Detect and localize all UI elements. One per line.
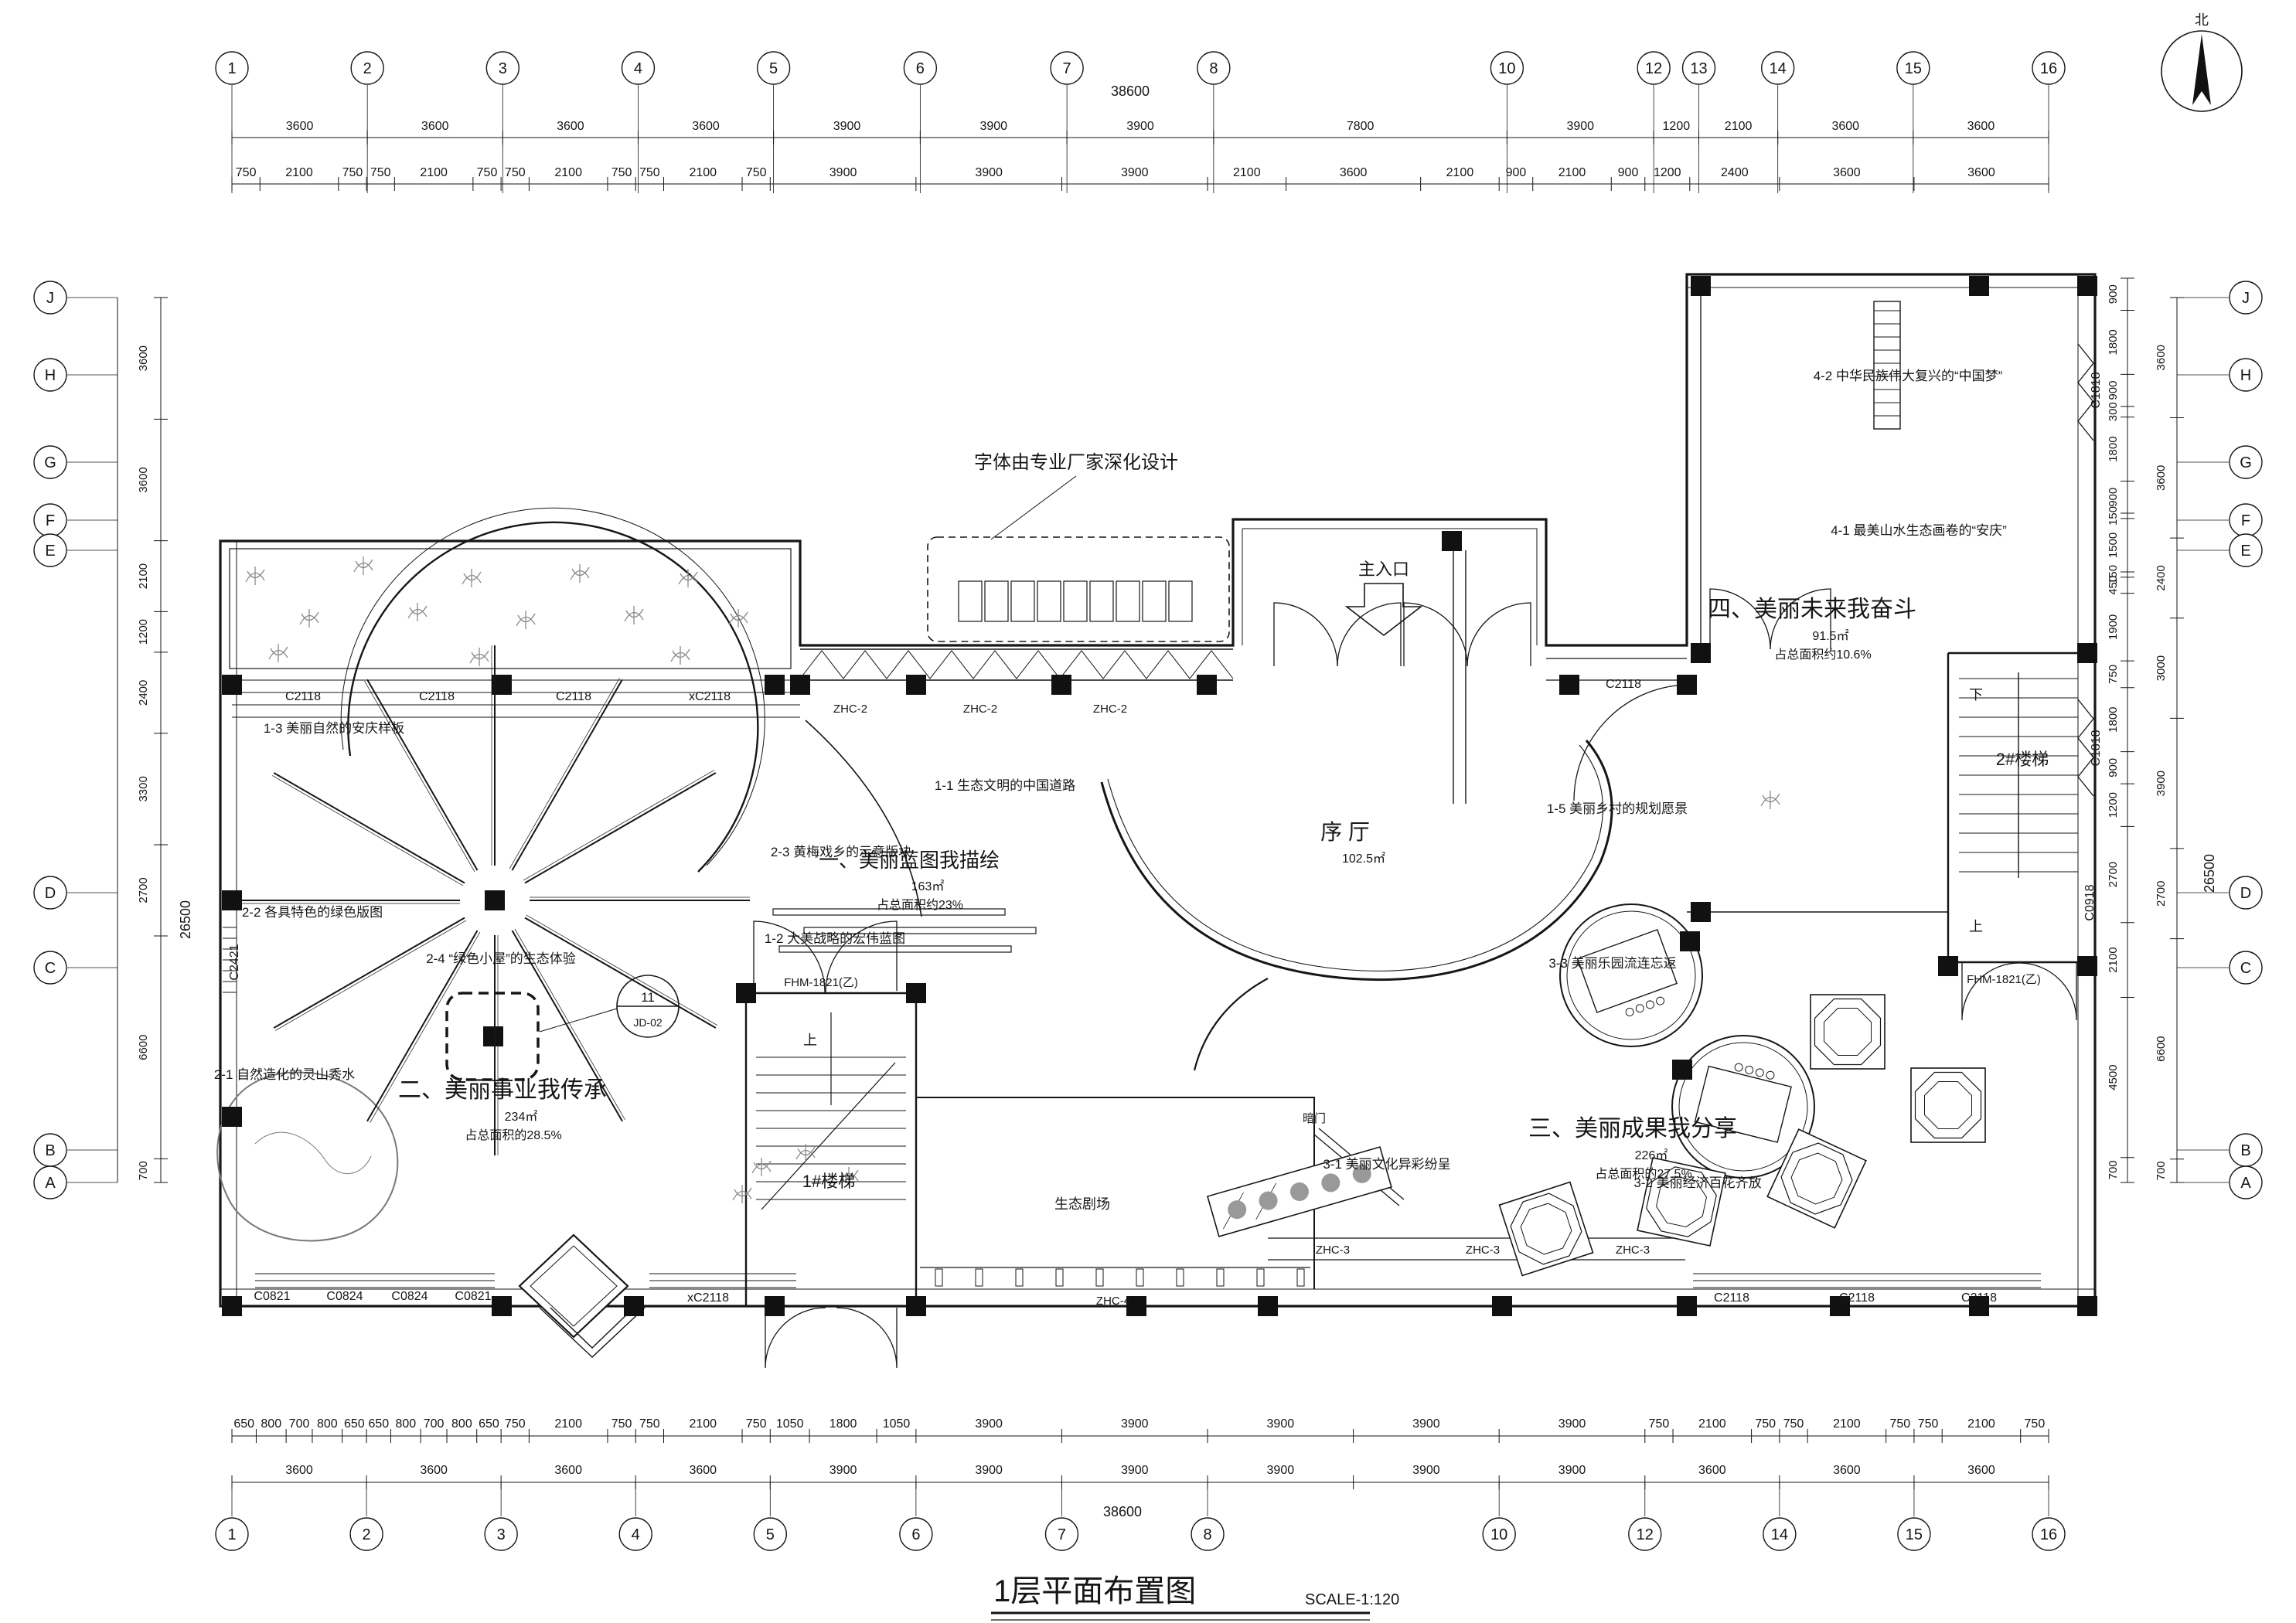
dim-label: 750 xyxy=(746,166,767,179)
door-leaf xyxy=(836,1308,897,1368)
dim-label: 2100 xyxy=(420,166,448,179)
grid-bubble-label: 2 xyxy=(363,60,372,77)
room-area: 102.5㎡ xyxy=(1342,852,1385,866)
grid-bubble-label: E xyxy=(2240,543,2250,560)
grid-bubble-label: E xyxy=(45,543,55,560)
booth-dot xyxy=(1645,1000,1655,1010)
dim-label: 3900 xyxy=(1566,120,1594,133)
dim-label: 750 xyxy=(236,166,257,179)
room-label: 生态剧场 xyxy=(1054,1196,1110,1212)
dim-label: 3900 xyxy=(1412,1464,1440,1477)
dim-label: 1050 xyxy=(883,1417,911,1431)
dim-label: 3600 xyxy=(1967,1464,1995,1477)
louver-tick xyxy=(1257,1269,1264,1286)
louver-label: ZHC-3 xyxy=(1616,1244,1650,1257)
dim-label: 750 xyxy=(1649,1417,1670,1431)
dim-label: 2100 xyxy=(137,563,150,589)
louver-tick xyxy=(1016,1269,1023,1286)
dim-label: 750 xyxy=(505,1417,526,1431)
dim-label: 3900 xyxy=(1558,1417,1586,1431)
column xyxy=(485,890,505,910)
grid-bubble-label: 5 xyxy=(769,60,778,77)
louver-label: ZHC-2 xyxy=(833,703,867,716)
dim-label: 2100 xyxy=(1967,1417,1995,1431)
dim-label: 750 xyxy=(505,166,526,179)
grid-bubble-label: 6 xyxy=(911,1526,920,1543)
signage-callout xyxy=(928,476,1229,641)
column xyxy=(222,890,242,910)
grid-bubble-label: 15 xyxy=(1906,1526,1923,1543)
grid-bubble-label: H xyxy=(45,367,56,384)
callout-leader xyxy=(991,476,1076,539)
grid-bubble-label: F xyxy=(2241,512,2250,529)
dim-label: 900 xyxy=(2107,758,2120,777)
dim-label: 1800 xyxy=(2107,436,2120,461)
grid-bubble-label: 10 xyxy=(1498,60,1515,77)
door-label: 暗门 xyxy=(1303,1112,1326,1125)
floor-plan-svg: 11 JD-02 字体由专业厂家深化设计 主入口 xyxy=(0,0,2296,1623)
window-label: xC2118 xyxy=(687,1291,729,1305)
booth-dot xyxy=(1745,1065,1754,1074)
column xyxy=(1442,531,1462,551)
window-label: C2118 xyxy=(1714,1291,1749,1305)
column xyxy=(1492,1296,1512,1316)
radial-spoke xyxy=(525,773,716,883)
grid-bubble-label: 14 xyxy=(1771,1526,1788,1543)
dim-label: 2100 xyxy=(554,1417,582,1431)
column xyxy=(1672,1060,1692,1080)
plant-icon xyxy=(679,569,697,587)
dim-label: 3600 xyxy=(1833,166,1861,179)
dim-label: 7800 xyxy=(1347,120,1375,133)
compass-label: 北 xyxy=(2195,12,2209,28)
dim-label: 3900 xyxy=(829,1464,857,1477)
window-label: C2118 xyxy=(556,690,591,703)
dim-label: 3900 xyxy=(1121,1417,1149,1431)
dim-label: 750 xyxy=(746,1417,767,1431)
dim-label: 6600 xyxy=(2155,1036,2168,1061)
plant-icon xyxy=(408,603,427,621)
door-arc-large xyxy=(1574,685,1690,801)
case-frame xyxy=(1811,995,1885,1069)
grid-bubble-label: D xyxy=(2240,885,2251,902)
dim-label: 3600 xyxy=(285,1464,313,1477)
grid-bubble-label: 6 xyxy=(916,60,925,77)
dim-label: 3600 xyxy=(1967,120,1995,133)
dim-label: 3900 xyxy=(1267,1464,1295,1477)
dim-label: 900 xyxy=(2107,488,2120,507)
column xyxy=(1677,1296,1697,1316)
grid-bubble-label: 16 xyxy=(2040,1526,2057,1543)
dim-label: 650 xyxy=(368,1417,389,1431)
signage-panel xyxy=(1116,581,1139,621)
column xyxy=(1258,1296,1278,1316)
plant-icon xyxy=(354,556,373,575)
window-label: C2118 xyxy=(1961,1291,1997,1305)
dim-label: 3900 xyxy=(1558,1464,1586,1477)
dim-label: 3900 xyxy=(1121,1464,1149,1477)
dim-label: 800 xyxy=(317,1417,338,1431)
plant-icon xyxy=(671,646,690,665)
dim-label: 3600 xyxy=(557,120,584,133)
shelf xyxy=(779,946,1011,952)
dim-label: 3900 xyxy=(1126,120,1154,133)
column xyxy=(222,1107,242,1127)
louver-tick xyxy=(1217,1269,1224,1286)
room-label: 2#楼梯 xyxy=(1996,750,2049,769)
dim-label: 2700 xyxy=(2155,881,2168,907)
plant-icon xyxy=(752,1158,771,1176)
grid-bubble-label: G xyxy=(44,454,56,471)
dim-label: 3600 xyxy=(554,1464,582,1477)
radial-spoke-edge xyxy=(275,920,466,1031)
plant-icon xyxy=(516,611,535,629)
dim-label: 3600 xyxy=(137,467,150,492)
title-block xyxy=(991,1613,1370,1620)
left-overall-dim: 26500 xyxy=(178,900,193,939)
dim-label: 3900 xyxy=(975,1417,1003,1431)
window-label: C0824 xyxy=(391,1290,428,1303)
grid-bubble-label: 4 xyxy=(632,1526,640,1543)
corridor-wall xyxy=(1453,550,1466,804)
callout-text: 字体由专业厂家深化设计 xyxy=(974,452,1178,473)
window-label: C2118 xyxy=(1839,1291,1875,1305)
dim-label: 750 xyxy=(477,166,498,179)
truss-zigzag xyxy=(800,651,1233,679)
annotation-1-2: 1-2 大美战略的宏伟蓝图 xyxy=(765,931,905,946)
top-overall-dim: 38600 xyxy=(1111,83,1150,99)
curve-wall-1 xyxy=(1102,782,1600,980)
octagon-case xyxy=(1811,995,1885,1069)
vestibule-diamond xyxy=(519,1235,628,1337)
dim-label: 3900 xyxy=(979,120,1007,133)
door-leaf xyxy=(1962,962,2019,1020)
dim-label: 2700 xyxy=(2107,862,2120,887)
booth-dot xyxy=(1625,1007,1635,1017)
dim-label: 3900 xyxy=(829,166,857,179)
curve-wall-4 xyxy=(806,720,921,917)
louver-tick xyxy=(1136,1269,1143,1286)
door-label: FHM-1821(乙) xyxy=(1967,973,2041,986)
grid-bubble-label: 1 xyxy=(227,1526,236,1543)
dim-label: 3900 xyxy=(1412,1417,1440,1431)
dim-label: 2100 xyxy=(1233,166,1261,179)
grid-bubble-label: 7 xyxy=(1063,60,1071,77)
annotation-4-1: 4-1 最美山水生态画卷的“安庆” xyxy=(1831,523,2007,538)
dim-label: 2100 xyxy=(1698,1417,1726,1431)
dim-label: 450 xyxy=(2107,576,2120,595)
dim-label: 750 xyxy=(1889,1417,1910,1431)
dim-label: 750 xyxy=(611,1417,632,1431)
plant-icon xyxy=(571,564,589,583)
entrance-arrow-icon xyxy=(1347,584,1421,635)
booth-circle-inner xyxy=(1567,911,1695,1039)
revision-cloud xyxy=(928,537,1229,641)
louver-label: ZHC-2 xyxy=(963,703,997,716)
sheet-scale: SCALE-1:120 xyxy=(1305,1591,1399,1608)
room-label: 三、美丽成果我分享 xyxy=(1528,1116,1737,1142)
column xyxy=(1938,956,1958,976)
louver-tick xyxy=(1297,1269,1304,1286)
dim-label: 2100 xyxy=(285,166,313,179)
grid-bubble-label: 8 xyxy=(1203,1526,1211,1543)
louver-tick xyxy=(976,1269,983,1286)
annotation-1-1: 1-1 生态文明的中国道路 xyxy=(935,778,1075,793)
grid-bubble-label: 3 xyxy=(497,1526,506,1543)
window-label: C0918 xyxy=(2083,884,2097,920)
plant-icon xyxy=(1761,791,1780,809)
louver-label: ZHC-2 xyxy=(1093,703,1127,716)
dim-label: 1900 xyxy=(2107,614,2120,640)
radial-spoke-edge xyxy=(272,775,463,886)
grid-bubble-label: F xyxy=(46,512,55,529)
column xyxy=(222,675,242,695)
door-leaf xyxy=(1467,603,1531,666)
dim-label: 650 xyxy=(344,1417,365,1431)
column xyxy=(906,1296,926,1316)
grid-bubble-label: 1 xyxy=(227,60,236,77)
grid-bubble-label: 15 xyxy=(1905,60,1922,77)
dim-label: 3600 xyxy=(420,1464,448,1477)
octagon-case xyxy=(1500,1182,1593,1276)
dim-label: 750 xyxy=(639,166,660,179)
column xyxy=(1197,675,1217,695)
column xyxy=(1051,675,1071,695)
booth-dot xyxy=(1655,996,1665,1006)
dim-label: 2100 xyxy=(554,166,582,179)
dim-label: 750 xyxy=(1755,1417,1776,1431)
ladder-hatch xyxy=(1874,301,1900,429)
dim-label: 1800 xyxy=(829,1417,857,1431)
generated-layer: 3600360036003600390039003900780039001200… xyxy=(34,52,2262,1550)
annotation-1-3: 1-3 美丽自然的安庆样板 xyxy=(264,721,404,736)
window-label: C2118 xyxy=(285,690,321,703)
entrance-label: 主入口 xyxy=(1358,560,1409,579)
signage-panel xyxy=(1064,581,1087,621)
dim-label: 650 xyxy=(233,1417,254,1431)
annotation-3-2: 3-2 美丽经济百花齐放 xyxy=(1633,1176,1761,1190)
dim-label: 3900 xyxy=(1267,1417,1295,1431)
louver-tick xyxy=(935,1269,942,1286)
annotation-2-4: 2-4 “绿色小屋”的生态体验 xyxy=(426,951,576,966)
dim-label: 3600 xyxy=(692,120,720,133)
column xyxy=(2077,276,2097,296)
annotation-3-3: 3-3 美丽乐园流连忘返 xyxy=(1548,956,1676,971)
booth-circle xyxy=(1560,904,1702,1046)
room-label: 二、美丽事业我传承 xyxy=(398,1077,607,1103)
dim-label: 700 xyxy=(2155,1161,2168,1180)
column xyxy=(2077,956,2097,976)
annotation-3-1: 3-1 美丽文化异彩纷呈 xyxy=(1323,1157,1450,1172)
annotation-2-3: 2-3 黄梅戏乡的示意版块 xyxy=(771,845,911,859)
case-frame xyxy=(1911,1068,1985,1142)
dim-label: 300 xyxy=(2107,402,2120,421)
dim-label: 700 xyxy=(424,1417,445,1431)
dim-label: 150 xyxy=(2107,506,2120,526)
dim-label: 2100 xyxy=(689,1417,717,1431)
dim-label: 750 xyxy=(342,166,363,179)
dim-label: 3900 xyxy=(2155,771,2168,796)
grid-bubble-label: J xyxy=(2242,290,2250,307)
door-leaf xyxy=(765,1308,826,1368)
signage-panel xyxy=(1011,581,1034,621)
dim-label: 1050 xyxy=(776,1417,804,1431)
booth-dot xyxy=(1755,1068,1764,1077)
room-area: 91.5㎡ xyxy=(1812,629,1848,643)
column xyxy=(765,1296,785,1316)
octagon-case xyxy=(1767,1129,1866,1228)
dim-label: 3600 xyxy=(137,345,150,371)
radial-spoke-edge xyxy=(523,771,714,881)
column xyxy=(483,1026,503,1046)
signage-panel xyxy=(1037,581,1061,621)
dim-label: 750 xyxy=(370,166,391,179)
dim-label: 3600 xyxy=(286,120,314,133)
window-label: C2118 xyxy=(419,690,455,703)
plant-icon xyxy=(462,569,481,587)
compass-needle-icon xyxy=(2192,34,2211,105)
column xyxy=(2077,1296,2097,1316)
column xyxy=(906,983,926,1003)
column xyxy=(624,1296,644,1316)
dim-label: 800 xyxy=(451,1417,472,1431)
room-area: 163㎡ xyxy=(911,880,945,893)
dim-label: 1500 xyxy=(2107,532,2120,558)
sheet-title: 1层平面布置图 xyxy=(993,1574,1196,1608)
dim-label: 700 xyxy=(289,1417,310,1431)
dim-label: 700 xyxy=(137,1161,150,1180)
plant-icon xyxy=(796,1144,815,1162)
dim-label: 1800 xyxy=(2107,329,2120,355)
dim-label: 750 xyxy=(2025,1417,2046,1431)
booth-table xyxy=(1577,930,1681,1026)
signage-panel xyxy=(985,581,1008,621)
column xyxy=(2077,643,2097,663)
dim-label: 900 xyxy=(2107,381,2120,400)
window-label: C0821 xyxy=(455,1290,491,1303)
column xyxy=(1680,931,1700,951)
radial-spoke xyxy=(367,679,478,870)
planting-bed xyxy=(230,549,791,669)
louver-label: ZHC-3 xyxy=(1466,1244,1500,1257)
column xyxy=(222,1296,242,1316)
window-label: C0824 xyxy=(326,1290,363,1303)
dim-label: 1200 xyxy=(1654,166,1681,179)
dim-label: 3300 xyxy=(137,776,150,801)
louver-tick xyxy=(1177,1269,1184,1286)
room-label: 四、美丽未来我奋斗 xyxy=(1708,597,1916,622)
louver-label: ZHC-4 xyxy=(1096,1295,1130,1308)
dim-label: 750 xyxy=(2107,665,2120,684)
curved-feature-walls xyxy=(806,720,1612,1070)
grid-bubble-label: B xyxy=(45,1142,55,1159)
grid-bubble-label: C xyxy=(2240,960,2251,977)
dim-label: 3900 xyxy=(833,120,861,133)
grid-bubble-label: 16 xyxy=(2040,60,2057,77)
signage-panel xyxy=(1090,581,1113,621)
curve-wall-3 xyxy=(1194,978,1268,1070)
grid-bubble-label: 12 xyxy=(1645,60,1662,77)
signage-panel xyxy=(1143,581,1166,621)
signage-panel xyxy=(959,581,982,621)
dim-label: 900 xyxy=(1618,166,1639,179)
colonnade-band xyxy=(800,649,1233,680)
dim-label: 700 xyxy=(2107,1160,2120,1179)
plant-icon xyxy=(470,648,489,666)
grid-bubble-label: D xyxy=(45,885,56,902)
dim-label: 3600 xyxy=(2155,465,2168,491)
radial-spoke-edge xyxy=(365,681,475,872)
room-pct: 占总面积的28.5% xyxy=(465,1128,561,1142)
grid-bubble-label: B xyxy=(2240,1142,2250,1159)
window-label: C2118 xyxy=(1606,678,1641,691)
grid-bubble-label: 13 xyxy=(1690,60,1707,77)
radial-spoke-edge xyxy=(509,678,620,869)
plant-icon xyxy=(729,609,748,628)
dim-label: 800 xyxy=(395,1417,416,1431)
dim-label: 3600 xyxy=(1967,166,1995,179)
room-label: 1#楼梯 xyxy=(802,1172,855,1191)
column xyxy=(790,675,810,695)
room-area: 226㎡ xyxy=(1635,1148,1668,1162)
door-leaf xyxy=(2019,962,2076,1020)
column xyxy=(1677,675,1697,695)
dim-label: 4500 xyxy=(2107,1064,2120,1090)
grid-bubble-label: 2 xyxy=(363,1526,371,1543)
column xyxy=(736,983,756,1003)
dim-label: 3600 xyxy=(1340,166,1368,179)
dim-label: 3600 xyxy=(2155,345,2168,370)
booth-table-rect xyxy=(1577,930,1677,1012)
column xyxy=(765,675,785,695)
column xyxy=(1559,675,1579,695)
plant-icon xyxy=(246,567,264,585)
detail-leader xyxy=(540,1009,617,1032)
booth-dot xyxy=(1766,1070,1775,1080)
louver-tick xyxy=(1096,1269,1103,1286)
grid-bubble-label: 4 xyxy=(634,60,642,77)
window-label: C1818 xyxy=(2090,730,2103,766)
room-pct: 占总面积约10.6% xyxy=(1774,648,1871,662)
annotation-2-1: 2-1 自然造化的灵山秀水 xyxy=(214,1067,355,1082)
booth-dot xyxy=(1635,1003,1645,1013)
right-overall-dim: 26500 xyxy=(2202,854,2217,893)
radial-spoke xyxy=(274,773,465,883)
stair2-walls xyxy=(1948,653,2078,962)
dim-label: 750 xyxy=(1783,1417,1804,1431)
door-label: FHM-1821(乙) xyxy=(784,976,858,989)
dim-label: 1200 xyxy=(137,619,150,645)
room-area: 234㎡ xyxy=(505,1110,538,1124)
octagon-case xyxy=(1911,1068,1985,1142)
plant-icon xyxy=(625,606,643,624)
window-label: C2421 xyxy=(228,944,241,980)
signage-panel xyxy=(1169,581,1192,621)
case-frame xyxy=(1500,1182,1593,1276)
annotation-4-2: 4-2 中华民族伟大复兴的“中国梦” xyxy=(1814,369,2003,383)
grid-bubble-label: 10 xyxy=(1490,1526,1507,1543)
radial-spoke-edge xyxy=(526,915,717,1026)
dim-label: 2700 xyxy=(137,877,150,903)
dim-label: 800 xyxy=(261,1417,281,1431)
dim-label: 2100 xyxy=(2107,947,2120,972)
dim-label: 2100 xyxy=(1558,166,1586,179)
grid-bubble-label: 12 xyxy=(1637,1526,1654,1543)
north-compass xyxy=(2161,31,2242,111)
dim-label: 6600 xyxy=(137,1035,150,1060)
annotation-2-2: 2-2 各具特色的绿色版图 xyxy=(242,905,383,920)
grid-bubble-label: C xyxy=(45,960,56,977)
